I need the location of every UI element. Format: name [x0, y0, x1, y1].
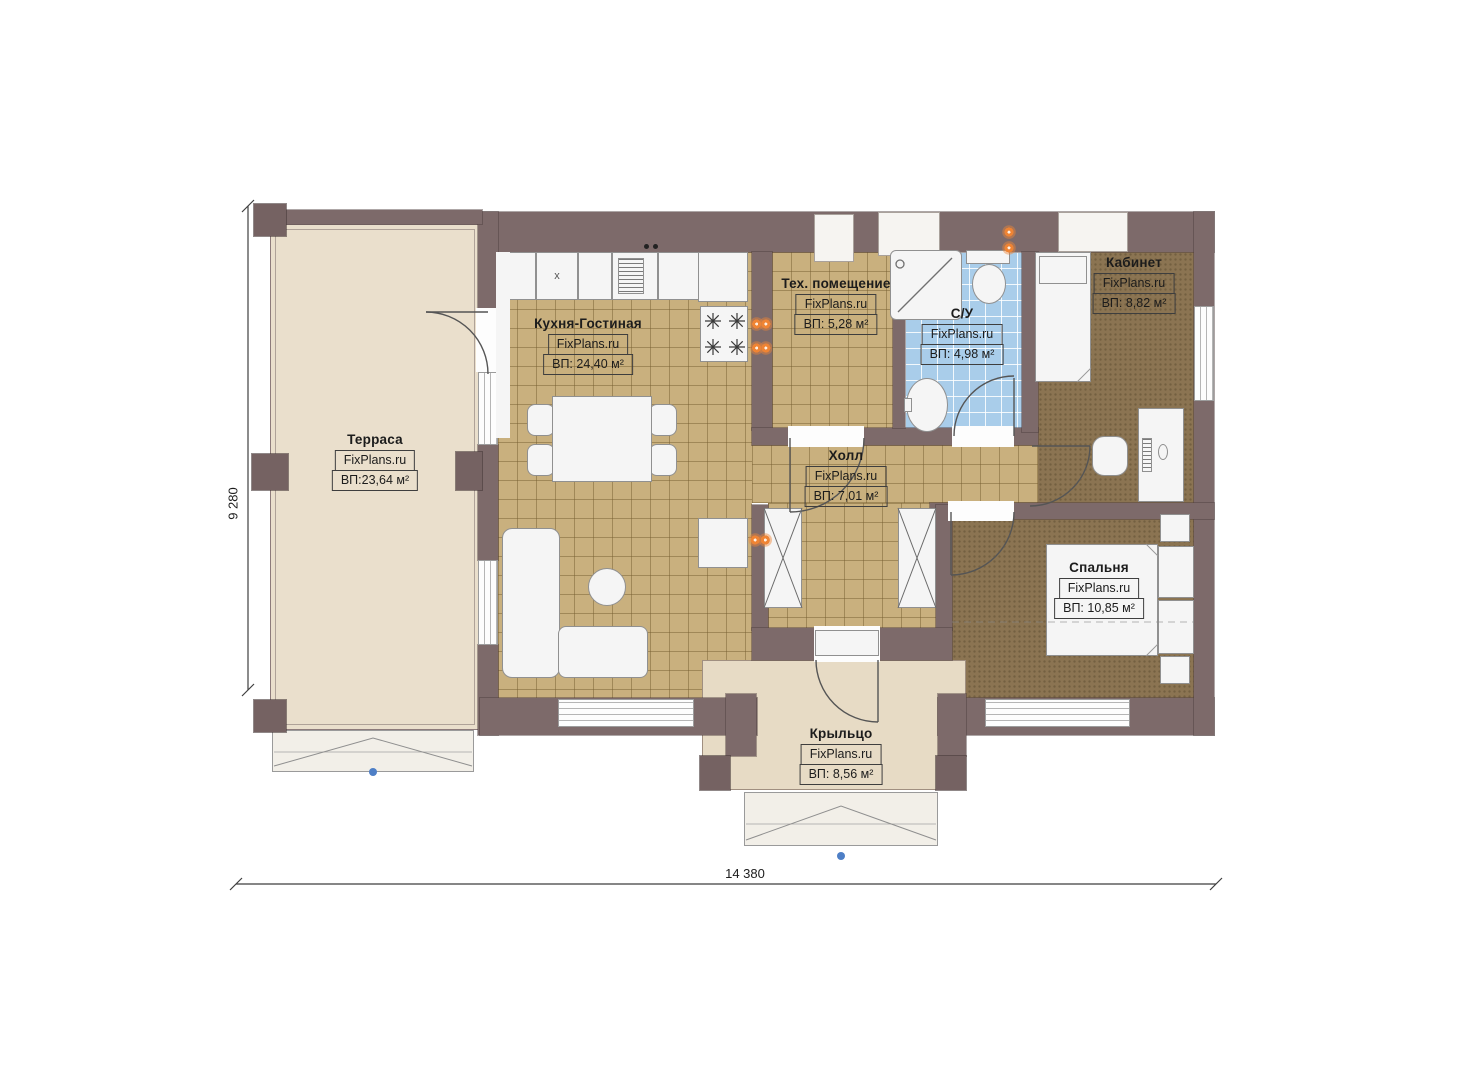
hall-floor [752, 445, 1038, 503]
single-bed-pillow [1039, 256, 1087, 284]
dining-chair [649, 404, 677, 436]
terrace-post [254, 204, 286, 236]
terrace-roof-beam [262, 210, 482, 224]
wall-segment-porch-side [938, 694, 966, 756]
pillow [1158, 546, 1194, 598]
wall-segment-entry-right [936, 505, 952, 630]
window [985, 699, 1130, 727]
cabinet-mark: x [536, 252, 578, 300]
watermark: FixPlans.ru [922, 324, 1003, 345]
room-name: С/У [951, 306, 974, 321]
room-label-porch: Крыльцо FixPlans.ru ВП: 8,56 м² [800, 726, 883, 785]
room-area: ВП: 4,98 м² [921, 344, 1004, 365]
wall-segment-entry-bottom [752, 628, 814, 660]
watermark: FixPlans.ru [801, 744, 882, 765]
terrace-steps [272, 730, 474, 772]
room-area: ВП: 5,28 м² [795, 314, 878, 335]
dining-chair [649, 444, 677, 476]
watermark: FixPlans.ru [806, 466, 887, 487]
desk-chair [1092, 436, 1128, 476]
toilet-bowl [972, 264, 1006, 304]
window [558, 699, 694, 727]
tech-door-opening [788, 426, 864, 447]
radiator [750, 338, 772, 358]
nightstand [1160, 514, 1190, 542]
wall-segment-porch-side [726, 694, 756, 756]
sink-tap-dot [644, 244, 649, 249]
terrace-post [252, 454, 288, 490]
bedroom-door-opening [948, 501, 1014, 521]
room-name: Крыльцо [810, 726, 873, 741]
kitchen-counter [698, 252, 748, 302]
room-label-bedroom: Спальня FixPlans.ru ВП: 10,85 м² [1054, 560, 1144, 619]
porch-post [700, 756, 730, 790]
watermark: FixPlans.ru [335, 450, 416, 471]
room-name: Кухня-Гостиная [534, 316, 642, 331]
room-area: ВП: 7,01 м² [805, 486, 888, 507]
watermark: FixPlans.ru [1059, 578, 1140, 599]
wall-segment-entry-bottom [880, 628, 952, 660]
room-area: ВП: 8,82 м² [1093, 293, 1176, 314]
dining-chair [527, 444, 555, 476]
nightstand [1160, 656, 1190, 684]
room-label-hall: Холл FixPlans.ru ВП: 7,01 м² [805, 448, 888, 507]
watermark: FixPlans.ru [796, 294, 877, 315]
room-area: ВП: 24,40 м² [543, 354, 633, 375]
floor-plan: x [0, 0, 1474, 1080]
terrace-post [254, 700, 286, 732]
washbasin-tap [904, 398, 912, 412]
wall-duct [1058, 212, 1128, 252]
marker-dot [837, 852, 845, 860]
room-name: Кабинет [1106, 255, 1162, 270]
watermark: FixPlans.ru [1094, 273, 1175, 294]
room-label-terrace: Терраса FixPlans.ru ВП:23,64 м² [332, 432, 418, 491]
window [478, 560, 498, 645]
dining-table [552, 396, 652, 482]
wall-segment-left [478, 212, 498, 312]
radiator [748, 530, 772, 550]
dimension-width: 14 380 [690, 866, 800, 881]
stove [700, 306, 748, 362]
kitchen-sink-basin [618, 258, 644, 294]
room-name: Терраса [347, 432, 403, 447]
room-label-kitchen-living: Кухня-Гостиная FixPlans.ru ВП: 24,40 м² [534, 316, 642, 375]
washbasin [906, 378, 948, 432]
coffee-table [588, 568, 626, 606]
porch-post [936, 756, 966, 790]
porch-steps [744, 792, 938, 846]
radiator [1000, 222, 1018, 258]
white-ledge [496, 252, 510, 438]
radiator [750, 314, 772, 334]
watermark: FixPlans.ru [548, 334, 629, 355]
monitor [1142, 438, 1152, 472]
room-label-office: Кабинет FixPlans.ru ВП: 8,82 м² [1093, 255, 1176, 314]
room-label-tech-room: Тех. помещение FixPlans.ru ВП: 5,28 м² [781, 276, 890, 335]
room-label-bathroom: С/У FixPlans.ru ВП: 4,98 м² [921, 306, 1004, 365]
entrance-door-leaf [815, 630, 879, 656]
tv-cabinet [698, 518, 748, 568]
dining-chair [527, 404, 555, 436]
room-area: ВП:23,64 м² [332, 470, 418, 491]
wall-duct [814, 214, 854, 262]
wardrobe [764, 508, 802, 608]
pillow [1158, 600, 1194, 654]
mouse [1158, 444, 1168, 460]
sofa-chaise [558, 626, 648, 678]
bathroom-door-opening [952, 426, 1014, 447]
sink-tap-dot [653, 244, 658, 249]
dimension-height: 9 280 [226, 469, 241, 539]
sofa [502, 528, 560, 678]
window [478, 372, 498, 445]
room-name: Спальня [1069, 560, 1129, 575]
room-area: ВП: 8,56 м² [800, 764, 883, 785]
window [1194, 306, 1214, 401]
wall-segment-right [1194, 212, 1214, 735]
kitchen-counter [658, 252, 700, 300]
room-area: ВП: 10,85 м² [1054, 598, 1144, 619]
room-name: Тех. помещение [781, 276, 890, 291]
room-name: Холл [829, 448, 864, 463]
terrace-post [456, 452, 482, 490]
kitchen-counter [578, 252, 612, 300]
wardrobe [898, 508, 936, 608]
